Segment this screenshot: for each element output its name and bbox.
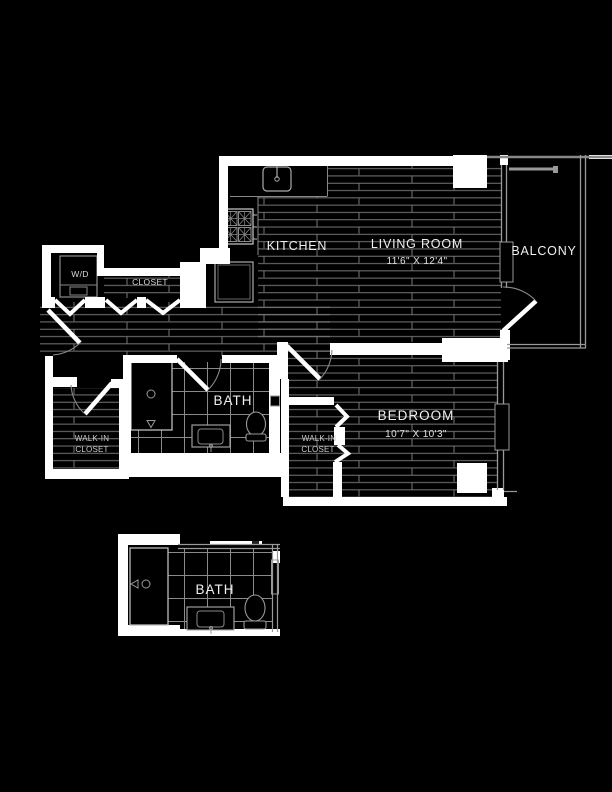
bathroom-label: BATH (213, 393, 252, 408)
detail-bath-left-wall (118, 534, 128, 636)
walk-in-closet-floor (53, 388, 119, 469)
bedroom-left-wall (281, 379, 289, 497)
bedroom-column (457, 463, 487, 493)
hall-closet-wall (104, 268, 196, 276)
living-room-floor (328, 166, 501, 342)
bedroom-dimensions: 10'7" X 10'3" (385, 429, 447, 440)
detail-toilet (244, 595, 266, 629)
floor-plan-page: KITCHEN LIVING ROOM 11'6" X 12'4" BALCON… (0, 0, 612, 792)
bedroom-window-mullion (495, 404, 509, 450)
bedroom-bottom-wall (283, 497, 507, 506)
west-exterior-wall (45, 356, 53, 477)
kitchen-label: KITCHEN (267, 239, 327, 253)
detail-shower (130, 548, 168, 625)
toilet (246, 412, 266, 441)
refrigerator (215, 262, 253, 302)
bedroom-label: BEDROOM (378, 408, 455, 423)
balcony-label: BALCONY (511, 244, 576, 258)
bedroom-closet-label-2: CLOSET (301, 445, 334, 454)
top-exterior-wall (219, 156, 456, 166)
laundry-label: W/D (71, 269, 88, 279)
walk-in-closet-label-2: CLOSET (75, 445, 108, 454)
walk-in-closet-label-1: WALK-IN (75, 434, 109, 443)
bath-top-wall (123, 355, 177, 363)
balcony-door (503, 287, 536, 331)
bedroom-top-wall (330, 343, 444, 355)
hall-closet-label: CLOSET (132, 277, 168, 287)
bathroom-detail-label: BATH (195, 582, 234, 597)
shower (131, 362, 172, 430)
column (453, 155, 487, 188)
laundry-top-wall (42, 245, 104, 253)
detail-bath-top-wall (118, 534, 180, 545)
kitchen-sink (263, 162, 291, 191)
floor-plan: KITCHEN LIVING ROOM 11'6" X 12'4" BALCON… (0, 0, 612, 792)
bedroom-closet-top-wall (288, 397, 334, 405)
closet-bottom-wall (45, 469, 129, 479)
bath-left-wall (123, 355, 131, 455)
detail-vanity-sink (187, 607, 234, 634)
living-room-dimensions: 11'6" X 12'4" (387, 256, 448, 267)
living-room-label: LIVING ROOM (371, 237, 463, 251)
bath-bottom-wall (123, 453, 285, 477)
detail-bath-top-line (178, 545, 280, 549)
bedroom-closet-label-1: WALK-IN (302, 434, 336, 443)
kitchen-left-wall (219, 156, 228, 255)
balcony-right-wall (581, 155, 586, 348)
balcony-bottom-wall (507, 345, 586, 349)
